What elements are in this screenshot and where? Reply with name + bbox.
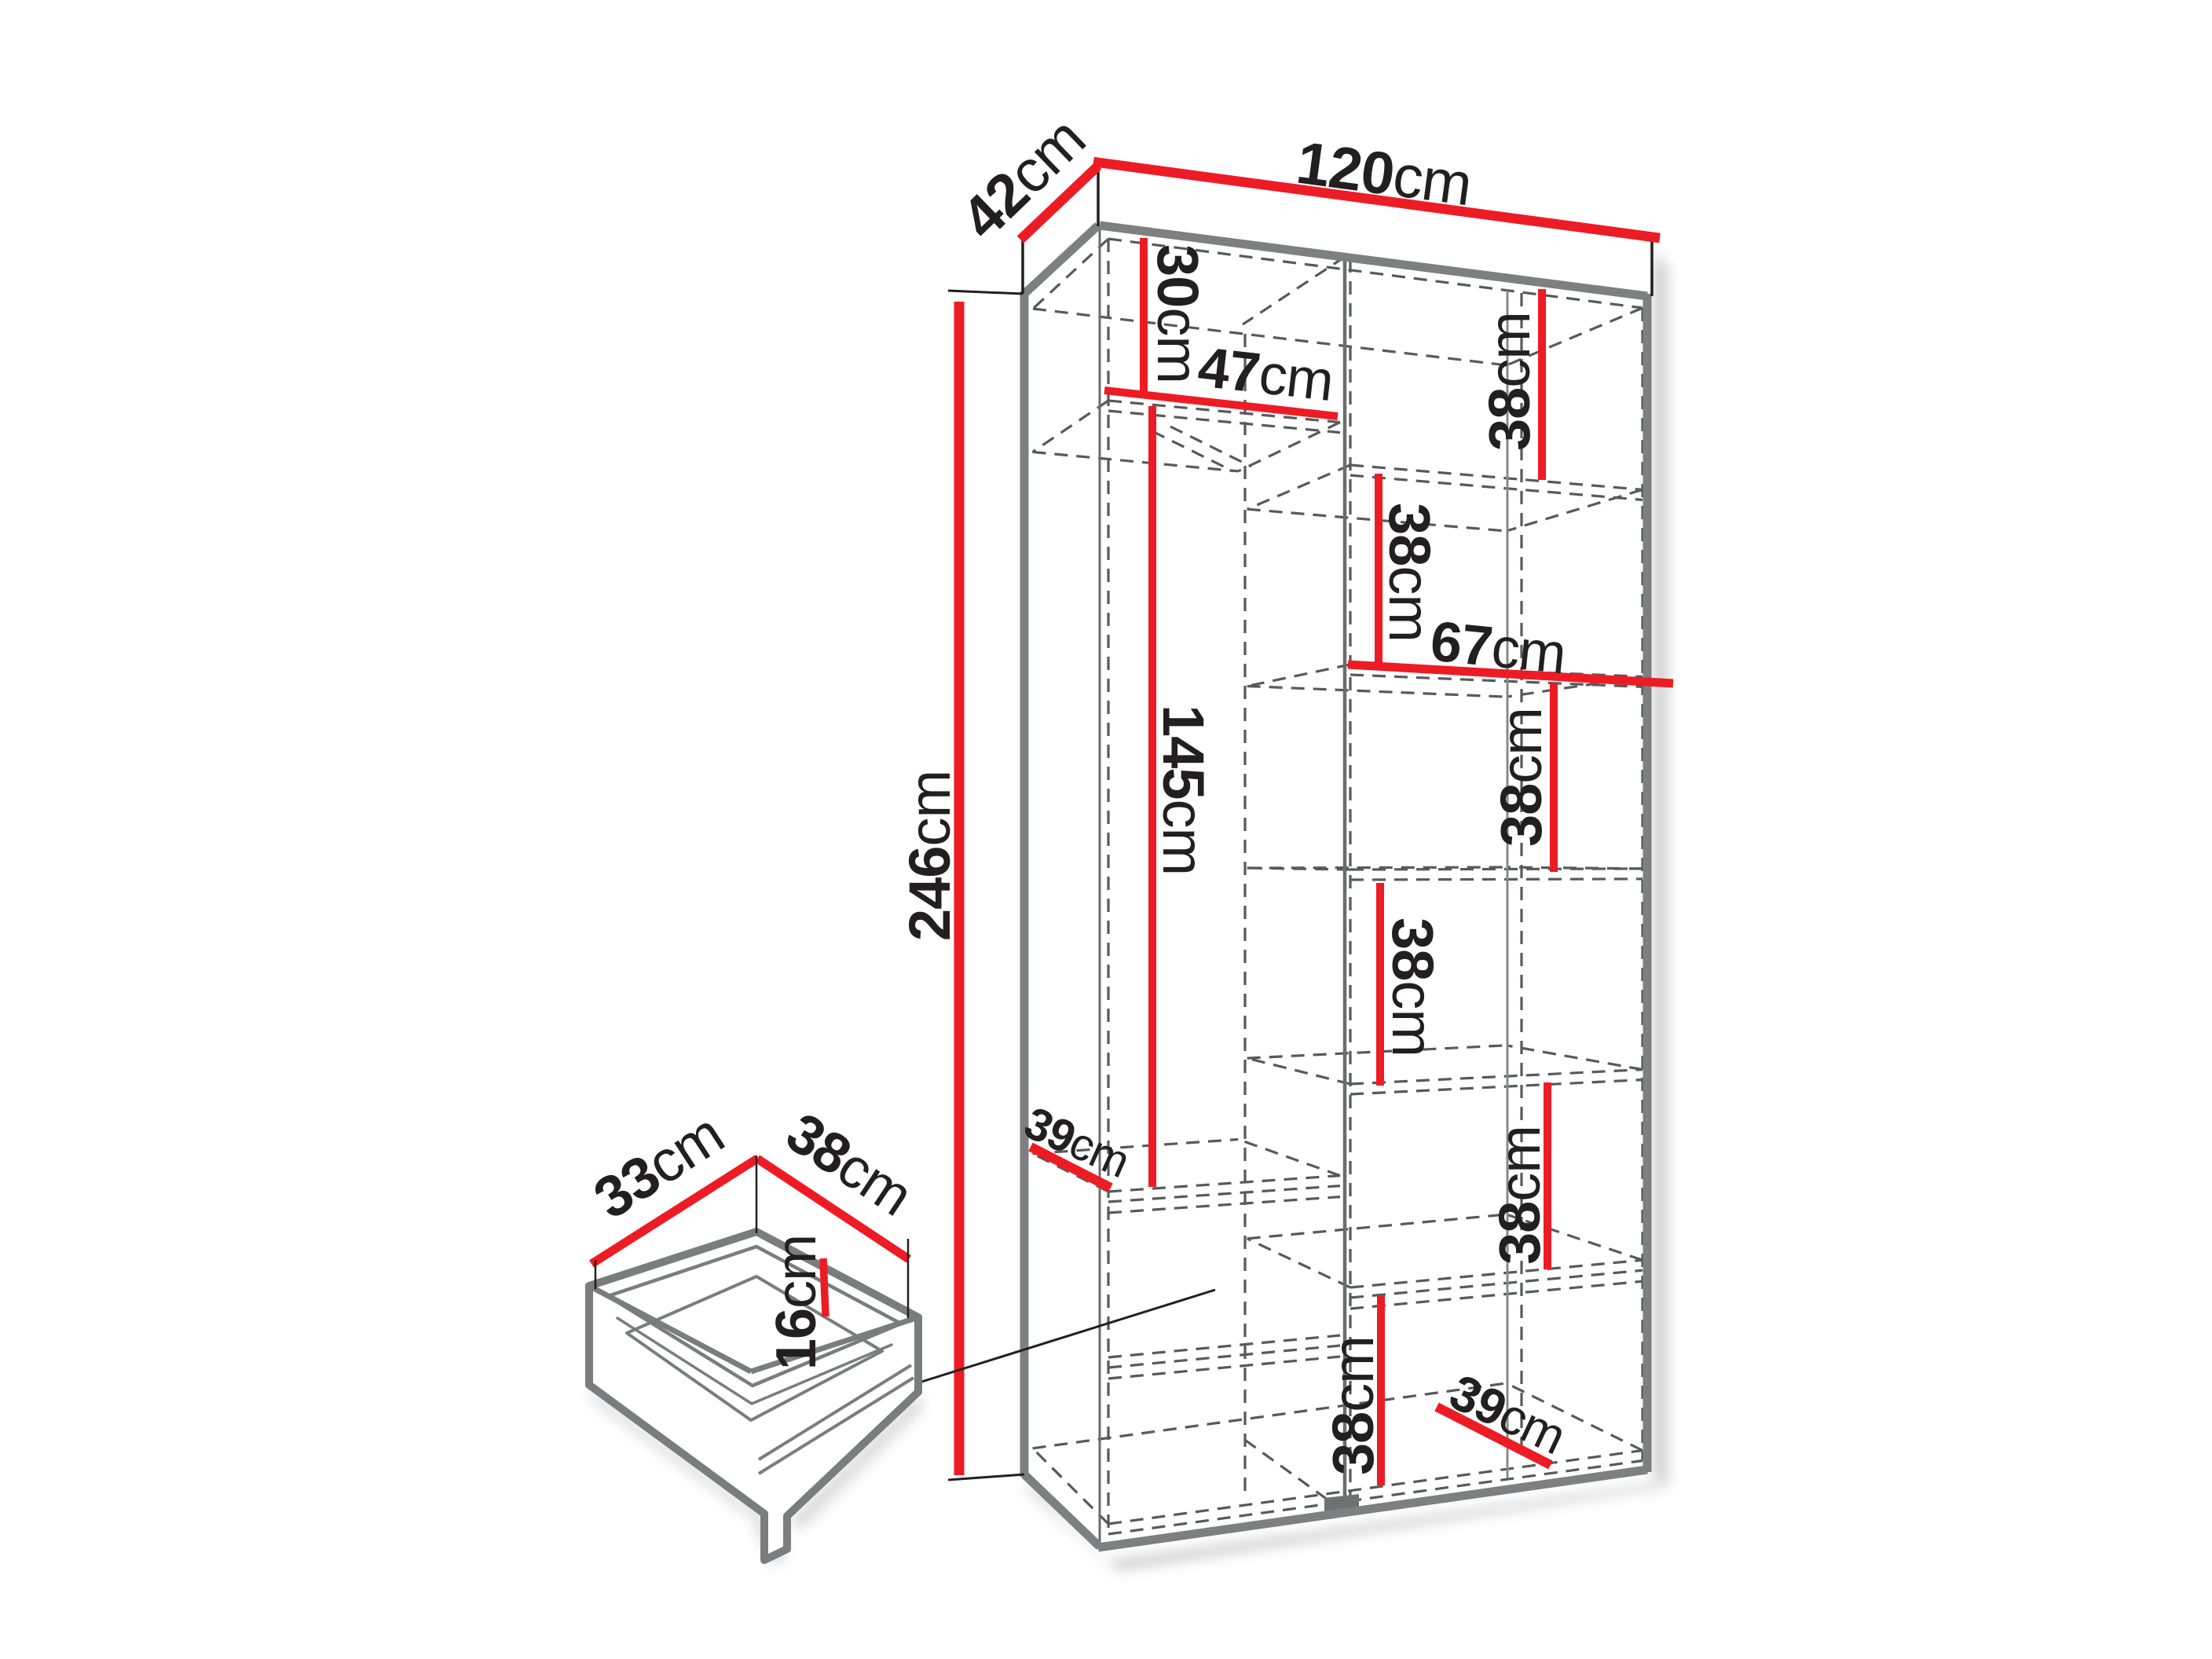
svg-text:16cm: 16cm <box>765 1235 828 1370</box>
svg-text:38cm: 38cm <box>1380 917 1445 1057</box>
svg-text:38cm: 38cm <box>1487 1126 1552 1265</box>
svg-text:38cm: 38cm <box>1320 1336 1386 1475</box>
svg-text:145cm: 145cm <box>1151 705 1216 875</box>
svg-text:38cm: 38cm <box>775 1101 923 1229</box>
svg-text:246cm: 246cm <box>897 771 962 941</box>
svg-text:38cm: 38cm <box>1489 708 1554 847</box>
svg-text:38cm: 38cm <box>1477 312 1542 451</box>
svg-text:33cm: 33cm <box>583 1101 735 1231</box>
